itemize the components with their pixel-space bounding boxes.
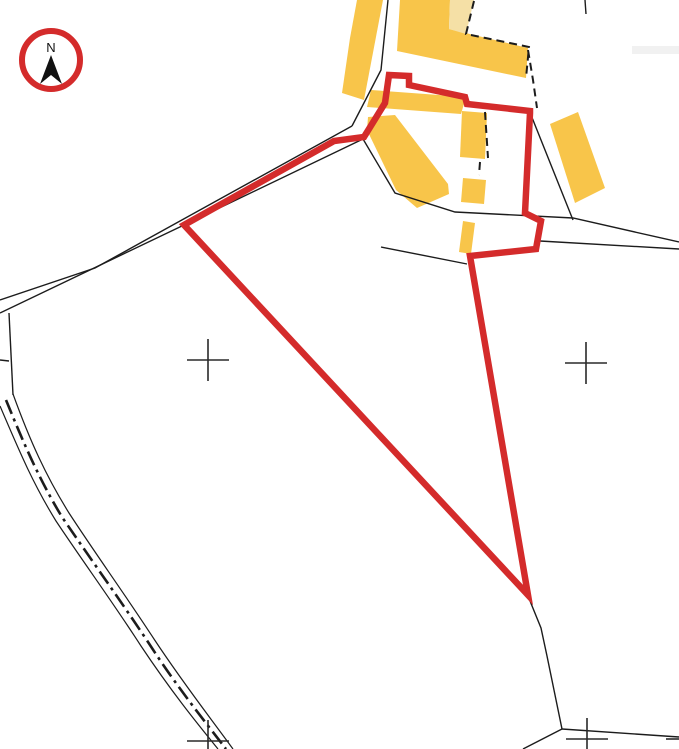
left-edge-tick [0,360,9,361]
map-background [0,0,679,749]
building-tall-narrow [460,111,487,159]
short-line-top [585,0,586,14]
site-plan-map: N [0,0,679,749]
north-label: N [46,40,55,55]
building-small-square [461,178,486,204]
faint-artifact [632,46,679,54]
map-canvas: N [0,0,679,749]
